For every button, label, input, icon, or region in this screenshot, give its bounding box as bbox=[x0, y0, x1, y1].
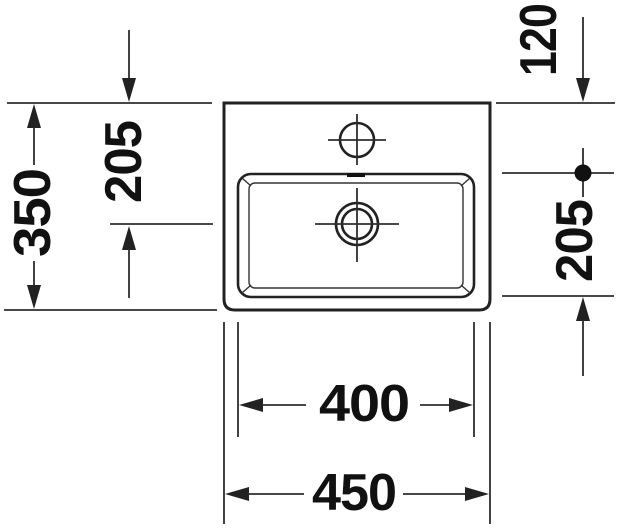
bowl-inner-edge bbox=[249, 183, 463, 288]
bowl-corner-bevel-bottom-right bbox=[461, 285, 470, 293]
arrow-down-icon bbox=[27, 285, 41, 309]
technical-drawing-canvas: 350 205 120 205 400 450 bbox=[0, 0, 617, 530]
arrow-up-icon bbox=[576, 297, 590, 321]
arrow-right-icon bbox=[449, 398, 473, 412]
dim-205-right-label: 205 bbox=[546, 200, 604, 282]
arrow-down-icon bbox=[122, 78, 136, 102]
arrow-up-icon bbox=[122, 226, 136, 250]
arrow-down-icon bbox=[576, 78, 590, 102]
dimension-total-width: 450 bbox=[225, 464, 489, 522]
tap-hole bbox=[328, 114, 386, 165]
dimension-total-depth: 350 bbox=[4, 104, 62, 309]
drain bbox=[315, 188, 399, 262]
dimension-bowl-width: 400 bbox=[239, 375, 473, 433]
dim-120-label: 120 bbox=[510, 4, 568, 76]
dimension-rear-to-bowl: 120 bbox=[510, 4, 590, 102]
dimension-rear-to-drain: 205 bbox=[95, 30, 153, 298]
dimension-bowl-depth: 205 bbox=[546, 148, 604, 376]
bowl-outline bbox=[238, 174, 474, 297]
washbasin-dimension-diagram: 350 205 120 205 400 450 bbox=[0, 0, 617, 530]
bowl-corner-bevel-top-right bbox=[461, 178, 470, 186]
dimension-dot bbox=[575, 165, 592, 182]
arrow-left-icon bbox=[225, 487, 249, 501]
dim-350-label: 350 bbox=[4, 169, 62, 257]
dim-205-left-label: 205 bbox=[95, 121, 153, 203]
bowl-corner-bevel-bottom-left bbox=[242, 285, 251, 293]
arrow-left-icon bbox=[239, 398, 263, 412]
arrow-up-icon bbox=[27, 104, 41, 128]
bowl-corner-bevel-top-left bbox=[242, 178, 251, 186]
dim-450-label: 450 bbox=[312, 464, 396, 522]
basin-body bbox=[224, 103, 490, 310]
dim-400-label: 400 bbox=[319, 375, 409, 433]
arrow-right-icon bbox=[465, 487, 489, 501]
